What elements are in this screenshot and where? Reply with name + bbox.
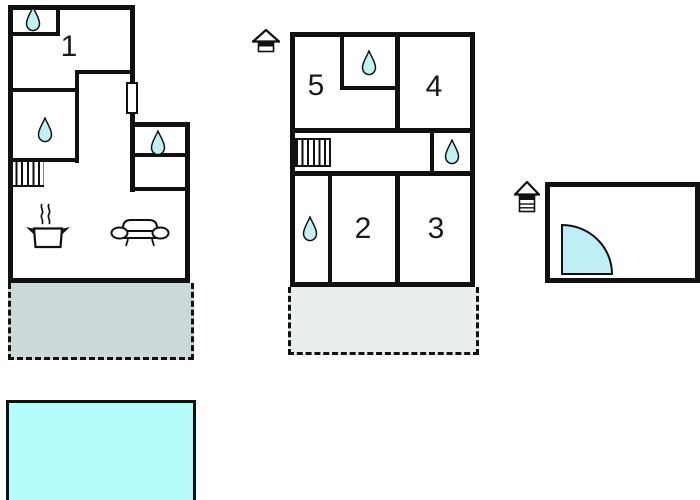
window-marker [126,82,138,114]
stairs-icon [294,138,331,167]
wall-segment [8,88,79,92]
water-drop-icon [361,50,377,76]
wall-segment [290,171,475,176]
water-drop-icon [302,216,318,242]
wall-segment [545,278,700,283]
wall-segment [695,182,700,283]
terrace-middle [288,287,479,355]
wall-segment [430,128,434,176]
entrance-house-icon [252,29,280,53]
room-label-5: 5 [296,71,336,101]
water-drop-icon [444,139,460,165]
wall-segment [8,5,13,283]
wall-segment [290,32,475,37]
wall-segment [185,122,190,283]
wall-segment [130,122,190,127]
stairs-icon [10,162,44,187]
room-label-3: 3 [416,214,456,244]
wall-segment [395,171,400,282]
door-swing-icon [558,222,614,276]
wall-segment [75,70,79,163]
water-drop-icon [37,117,53,143]
wall-segment [340,32,344,90]
stove-icon [25,202,71,250]
water-drop-icon [25,6,41,32]
wall-segment [290,128,475,133]
wall-segment [470,32,475,287]
sofa-icon [110,216,170,250]
wall-segment [545,182,550,283]
wall-segment [77,70,133,74]
wall-segment [545,182,700,187]
water-drop-icon [150,130,166,156]
floor-plan: 1 [0,0,700,500]
room-label-1: 1 [49,32,89,62]
pool [6,400,196,500]
entrance-house-icon [514,181,540,213]
terrace-left [8,283,194,360]
wall-segment [340,86,399,90]
wall-segment [395,32,400,133]
wall-segment [130,187,187,191]
room-label-4: 4 [414,72,454,102]
wall-segment [328,171,332,282]
room-label-2: 2 [343,214,383,244]
